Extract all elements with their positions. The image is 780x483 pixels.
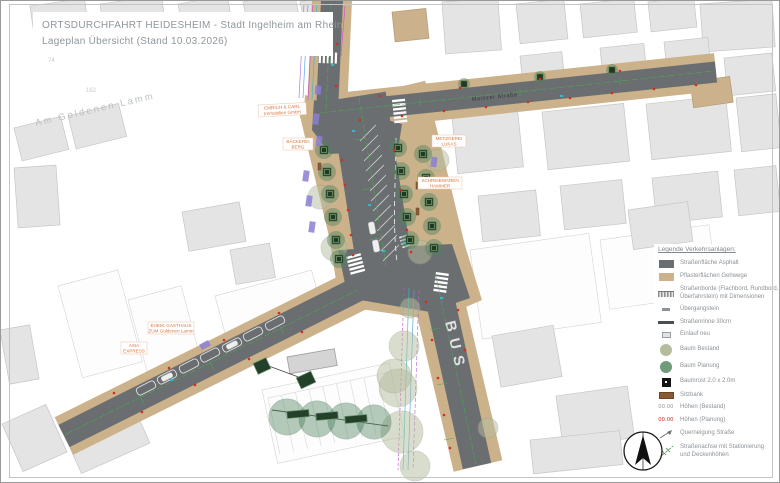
legend-item-inlet: Einlauf neu (658, 331, 780, 339)
legend-item-cross-slope: Querneigung Straße (658, 429, 780, 439)
legend-item-gutter: Straßenrinne 30cm (658, 319, 780, 327)
legend-item-heights-planned: 00.00 Höhen (Planung) (658, 417, 780, 425)
inlet-icon (662, 332, 671, 338)
plan-title: ORTSDURCHFAHRT HEIDESHEIM - Stadt Ingelh… (42, 18, 324, 34)
legend-item-paving: Pflasterflächen Gehwege (658, 273, 780, 281)
svg-text:SCHREIBWAREN: SCHREIBWAREN (421, 178, 458, 183)
label-baeckerei-berg: BÄCKEREI BERG (283, 138, 313, 150)
svg-text:BÄCKEREI: BÄCKEREI (286, 138, 309, 144)
site-plan-sheet: BUS (0, 0, 780, 483)
svg-text:EXPRESS: EXPRESS (123, 349, 145, 354)
legend-item-tree-planned: Baum Planung (658, 361, 780, 373)
tree-existing-icon (660, 344, 672, 356)
transition-stone-icon (662, 308, 670, 311)
heights-existing-sample: 00.00 (658, 404, 673, 411)
north-arrow (620, 428, 666, 474)
legend-item-tree-existing: Baum Bestand (658, 344, 780, 356)
legend-item-heights-existing: 00.00 Höhen (Bestand) (658, 404, 780, 412)
paving-swatch-icon (659, 273, 674, 281)
label-emrich: EMRICH & CARL Immobilien GmbH (258, 102, 307, 116)
plan-subtitle: Lageplan Übersicht (Stand 10.03.2026) (42, 34, 324, 50)
svg-text:LUKAS: LUKAS (441, 142, 456, 147)
svg-text:HAMMER: HAMMER (430, 184, 451, 189)
legend-item-axis: Straßenachse mit Stationierungund Decken… (658, 444, 780, 459)
title-block: ORTSDURCHFAHRT HEIDESHEIM - Stadt Ingelh… (33, 12, 333, 56)
legend-item-bench: Sitzbank (658, 392, 780, 400)
legend: Legende Verkehrsanlagen: Straßenfläche A… (654, 244, 780, 466)
heights-planned-sample: 00.00 (658, 417, 673, 424)
label-metzgerei: METZGEREI LUKAS (432, 135, 466, 147)
legend-item-asphalt: Straßenfläche Asphalt (658, 260, 780, 268)
road-central-corridor (358, 96, 385, 268)
svg-text:EHEM. GASTHAUS: EHEM. GASTHAUS (150, 323, 191, 328)
svg-text:BERG: BERG (291, 145, 304, 150)
legend-item-transition-stone: Übergangstein (658, 306, 780, 314)
svg-text:METZGEREI: METZGEREI (436, 136, 463, 141)
tree-grate-icon (662, 378, 671, 387)
bench-icon (659, 392, 674, 399)
legend-title: Legende Verkehrsanlagen: (658, 246, 780, 254)
parcel-number: 74 (48, 58, 55, 64)
svg-text:ASIA: ASIA (129, 343, 140, 348)
gutter-swatch-icon (658, 321, 674, 324)
svg-text:ZUM Goldenen Lamm: ZUM Goldenen Lamm (148, 329, 193, 334)
curb-swatch-icon (658, 291, 674, 297)
asphalt-swatch-icon (659, 260, 674, 268)
parcel-number: 162 (86, 88, 97, 94)
label-asia-express: ASIA EXPRESS (121, 342, 147, 354)
legend-item-tree-grate: Baumrost 2.0 x 2.0m (658, 378, 780, 387)
legend-item-curb: Straßenborde (Flachbord, Rundbord,Überfa… (658, 286, 780, 301)
label-schreibwaren: SCHREIBWAREN HAMMER (418, 177, 462, 189)
tree-planned-icon (660, 361, 672, 373)
label-gasthaus: EHEM. GASTHAUS ZUM Goldenen Lamm (148, 322, 194, 334)
